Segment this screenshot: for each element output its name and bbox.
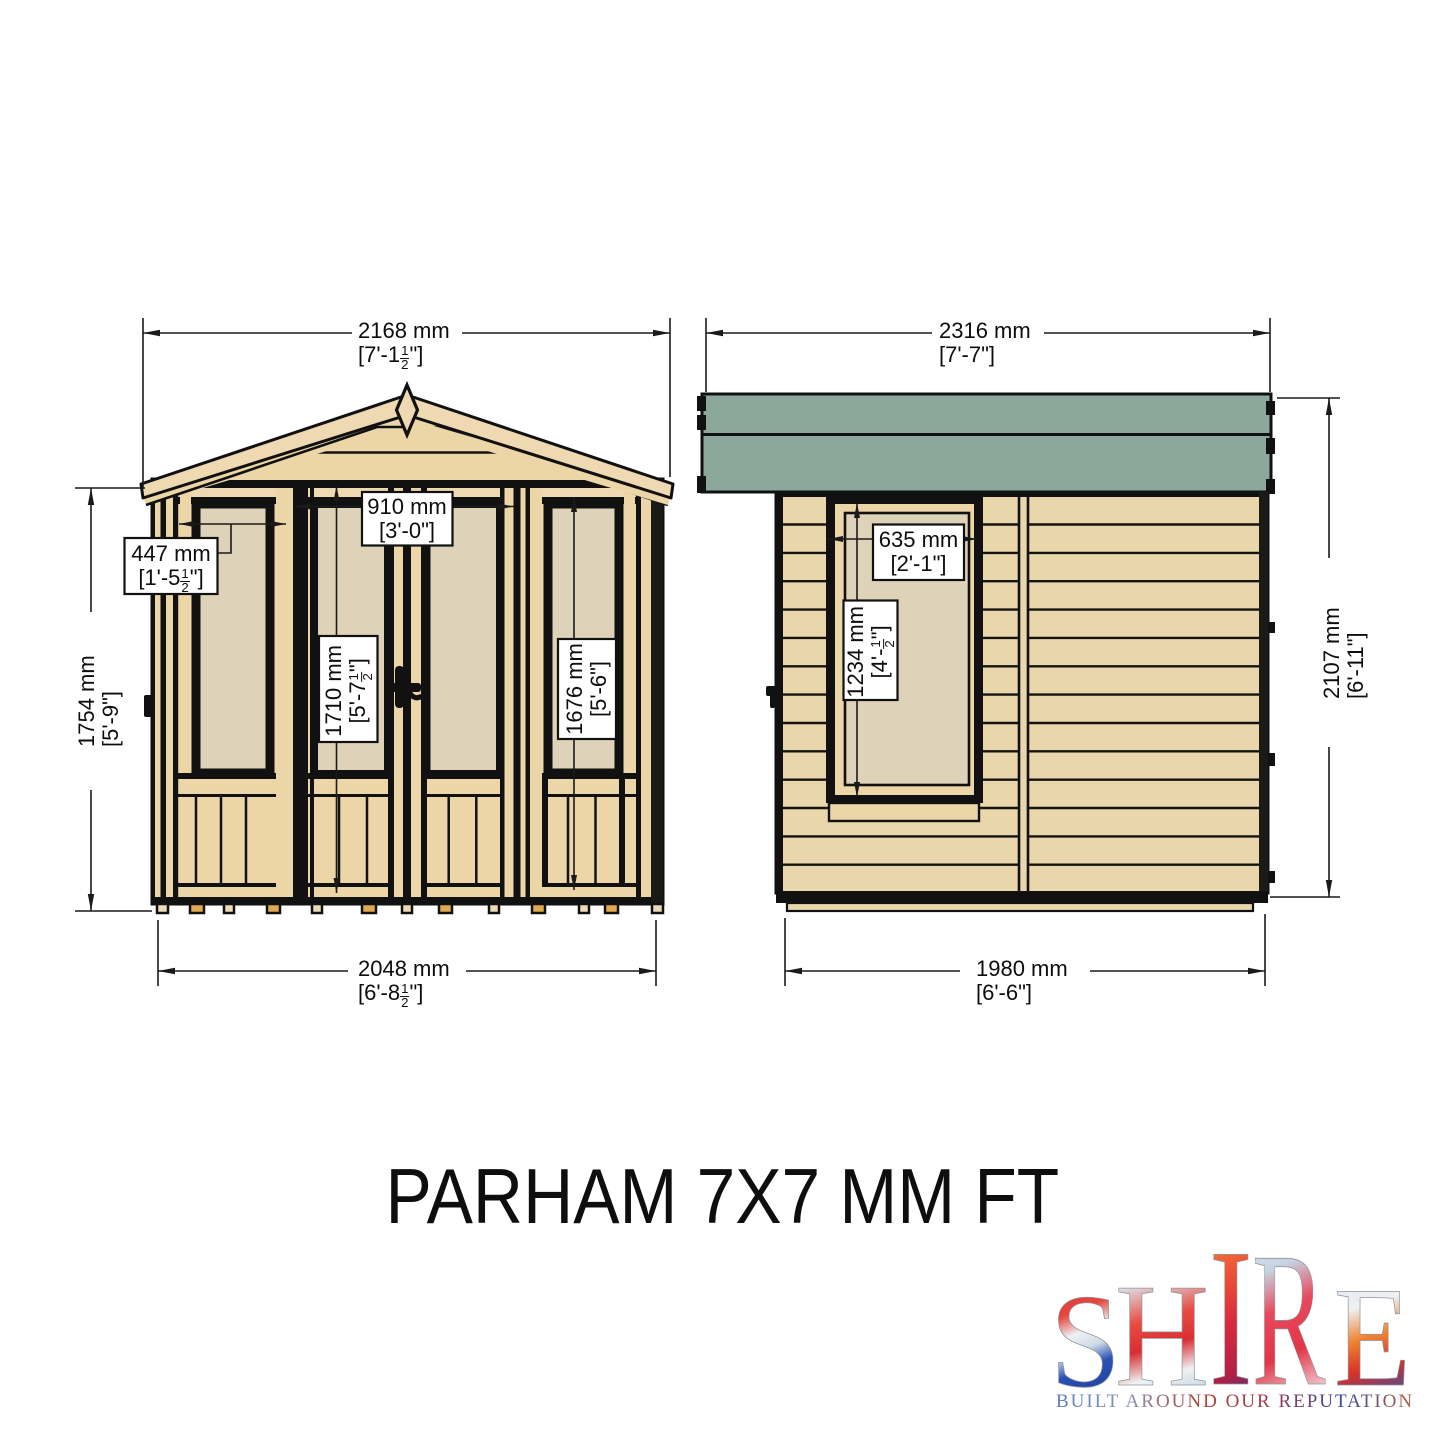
svg-text:BUILT AROUND OUR REPUTATION: BUILT AROUND OUR REPUTATION bbox=[1056, 1391, 1414, 1412]
